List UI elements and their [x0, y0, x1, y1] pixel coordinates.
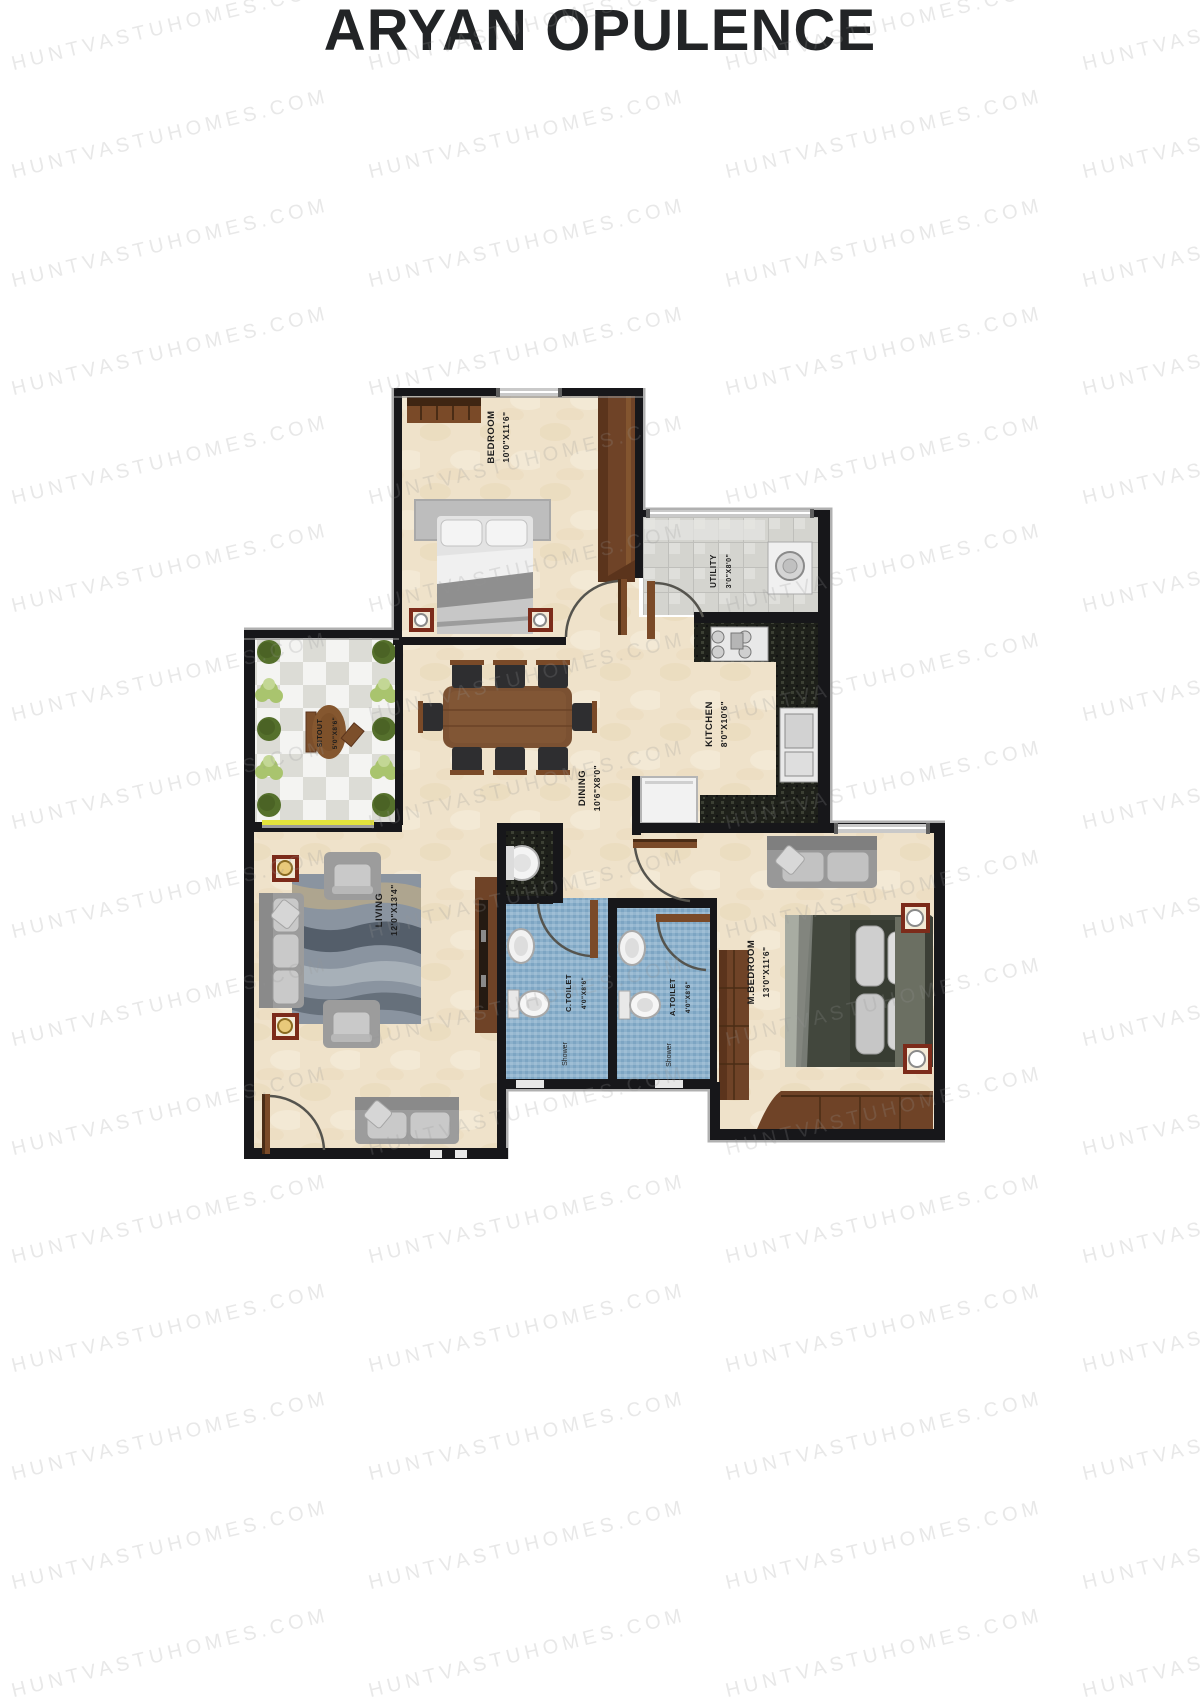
svg-text:3'0"X8'0": 3'0"X8'0": [726, 554, 733, 589]
svg-text:Shower: Shower: [666, 1042, 673, 1066]
svg-text:M.BEDROOM: M.BEDROOM: [746, 940, 757, 1005]
svg-text:10'6"X8'0": 10'6"X8'0": [592, 765, 602, 811]
svg-text:10'0"X11'6": 10'0"X11'6": [501, 411, 511, 462]
svg-text:KITCHEN: KITCHEN: [704, 701, 715, 747]
svg-text:C.TOILET: C.TOILET: [564, 974, 573, 1012]
svg-text:LIVING: LIVING: [374, 893, 385, 928]
svg-text:A.TOILET: A.TOILET: [668, 978, 677, 1016]
svg-text:DINING: DINING: [577, 770, 588, 806]
svg-text:4'0"X8'6": 4'0"X8'6": [581, 977, 588, 1010]
svg-text:8'0"X10'6": 8'0"X10'6": [719, 701, 729, 747]
svg-text:UTILITY: UTILITY: [709, 554, 718, 588]
svg-text:12'0"X13'4": 12'0"X13'4": [389, 884, 399, 936]
svg-text:4'0"X8'6": 4'0"X8'6": [685, 981, 692, 1014]
svg-text:BEDROOM: BEDROOM: [486, 410, 497, 463]
svg-text:13'0"X11'6": 13'0"X11'6": [761, 946, 771, 997]
svg-text:5'0"X8'6": 5'0"X8'6": [332, 717, 339, 750]
svg-text:Shower: Shower: [562, 1041, 569, 1065]
svg-text:SITOUT: SITOUT: [317, 719, 324, 748]
